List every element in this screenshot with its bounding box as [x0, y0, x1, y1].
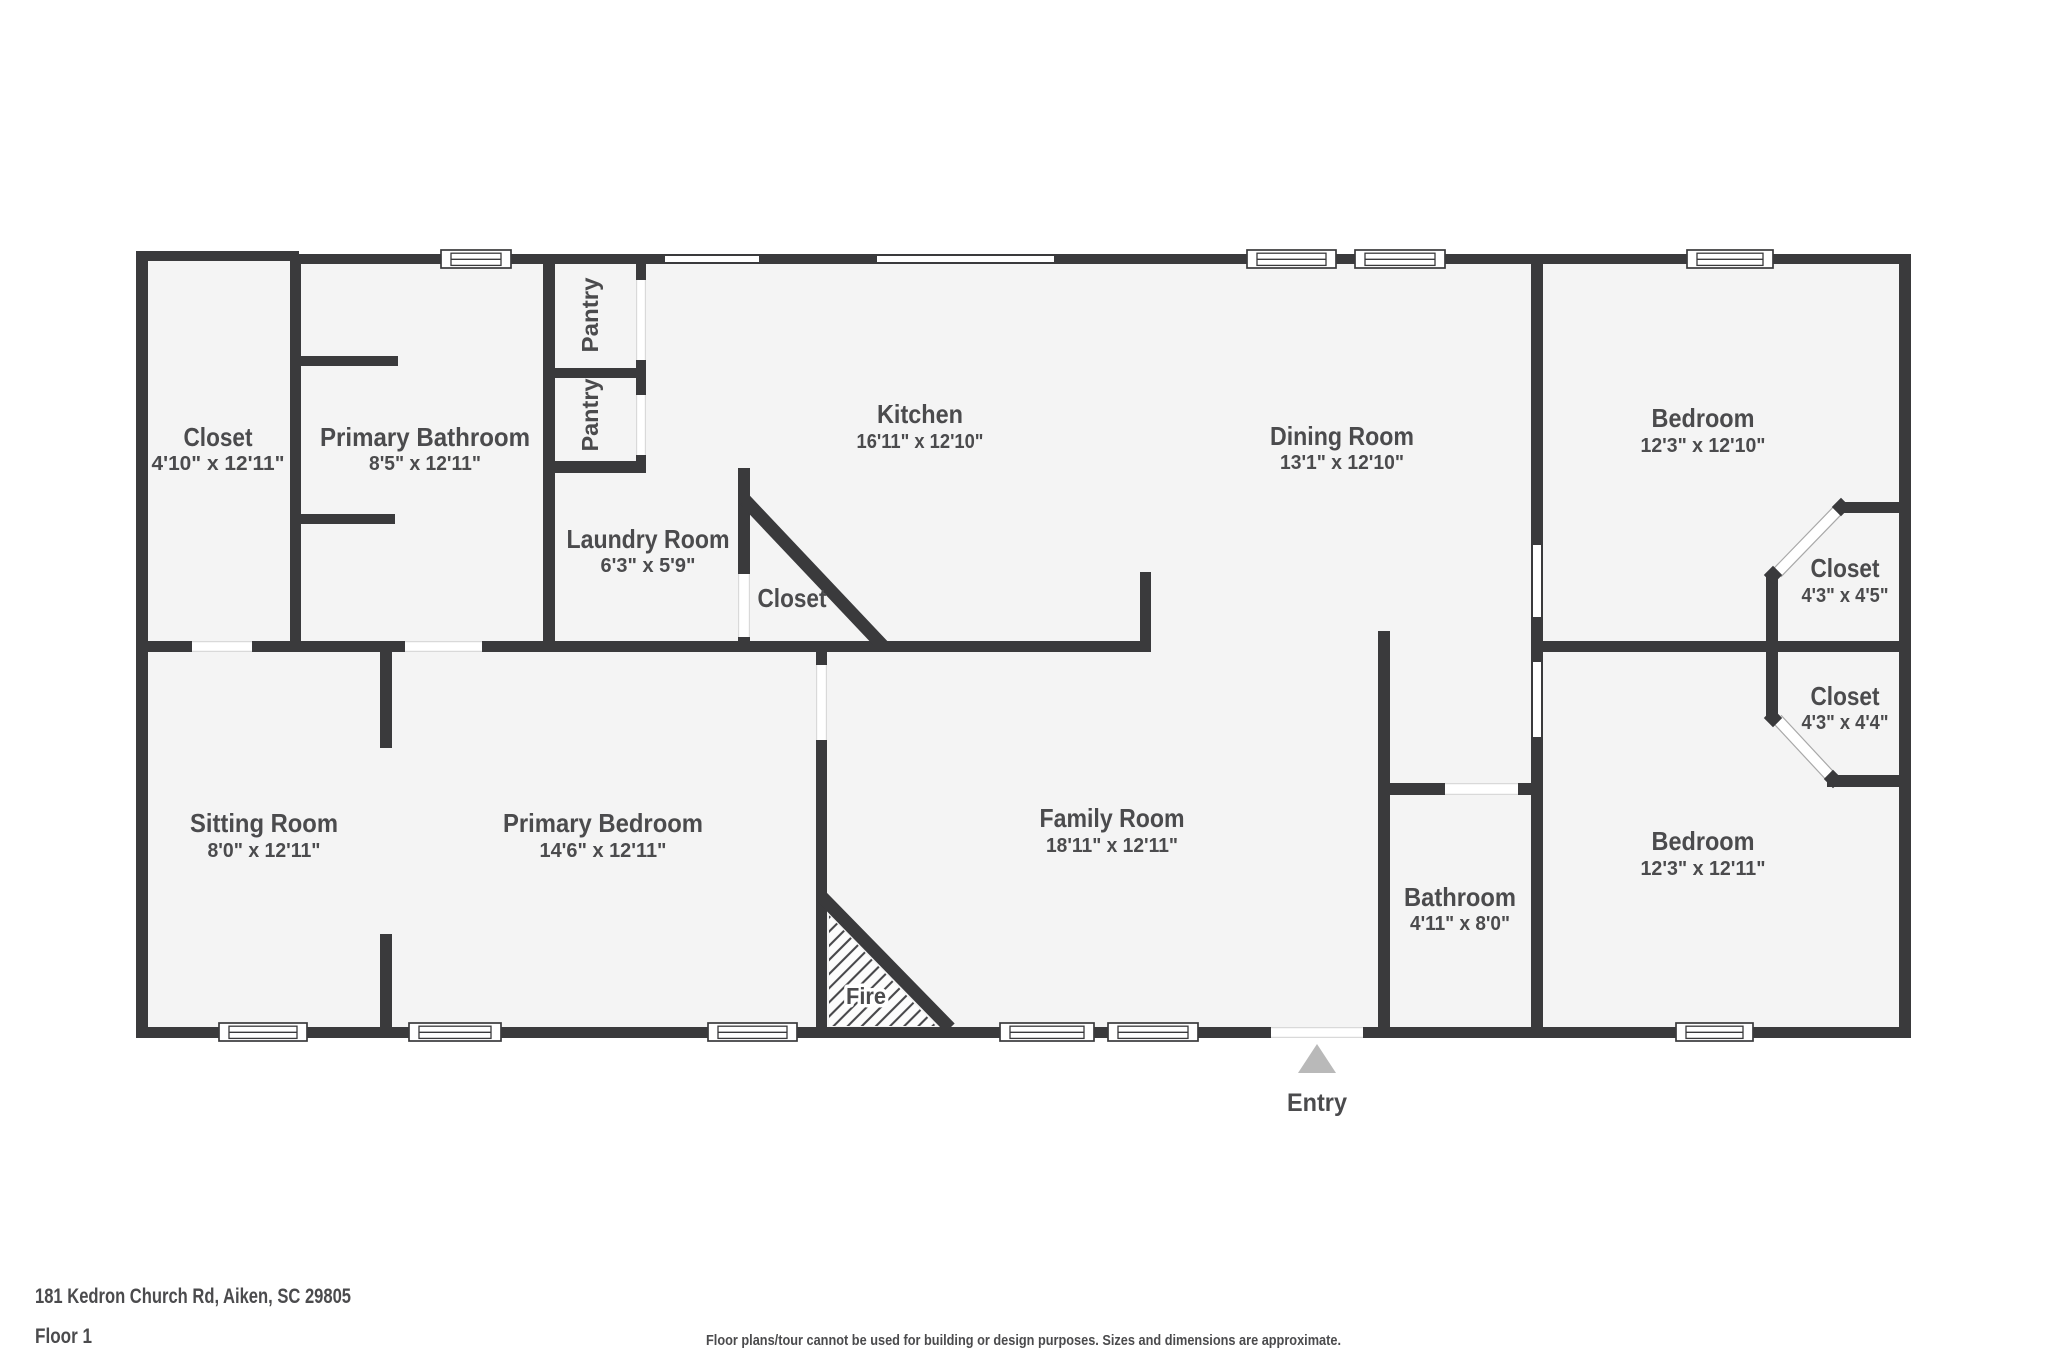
svg-text:4'3" x 4'4": 4'3" x 4'4" — [1802, 712, 1889, 734]
svg-text:Closet: Closet — [1811, 681, 1880, 711]
svg-text:8'0" x 12'11": 8'0" x 12'11" — [208, 840, 321, 862]
svg-text:Floor 1: Floor 1 — [35, 1325, 92, 1348]
svg-text:181 Kedron Church Rd, Aiken, S: 181 Kedron Church Rd, Aiken, SC 29805 — [35, 1285, 351, 1308]
svg-text:Closet: Closet — [1811, 553, 1880, 583]
svg-text:4'3" x 4'5": 4'3" x 4'5" — [1802, 585, 1889, 607]
svg-text:Entry: Entry — [1287, 1089, 1347, 1117]
svg-text:Sitting Room: Sitting Room — [190, 808, 338, 838]
svg-text:Floor plans/tour cannot be use: Floor plans/tour cannot be used for buil… — [706, 1332, 1341, 1349]
svg-text:Fire: Fire — [846, 983, 886, 1009]
svg-text:Pantry: Pantry — [577, 378, 603, 451]
svg-text:12'3" x 12'11": 12'3" x 12'11" — [1641, 858, 1766, 880]
svg-text:Kitchen: Kitchen — [877, 399, 963, 429]
svg-text:Closet: Closet — [184, 422, 253, 452]
svg-text:Pantry: Pantry — [577, 277, 603, 352]
svg-text:Primary Bedroom: Primary Bedroom — [503, 808, 703, 838]
svg-text:Laundry Room: Laundry Room — [567, 524, 730, 554]
svg-text:14'6" x 12'11": 14'6" x 12'11" — [540, 840, 667, 862]
svg-text:Primary Bathroom: Primary Bathroom — [320, 422, 530, 452]
svg-text:8'5" x 12'11": 8'5" x 12'11" — [369, 453, 481, 475]
svg-text:12'3" x 12'10": 12'3" x 12'10" — [1641, 435, 1766, 457]
svg-text:13'1" x 12'10": 13'1" x 12'10" — [1280, 452, 1404, 474]
svg-text:Dining Room: Dining Room — [1270, 421, 1414, 451]
svg-text:4'10" x 12'11": 4'10" x 12'11" — [152, 453, 285, 475]
svg-text:Bedroom: Bedroom — [1652, 826, 1755, 856]
svg-text:4'11" x 8'0": 4'11" x 8'0" — [1410, 913, 1510, 935]
svg-text:Bathroom: Bathroom — [1404, 882, 1516, 912]
svg-text:Family Room: Family Room — [1040, 803, 1185, 833]
svg-text:Bedroom: Bedroom — [1652, 403, 1755, 433]
svg-text:6'3" x 5'9": 6'3" x 5'9" — [601, 555, 696, 577]
svg-text:16'11" x 12'10": 16'11" x 12'10" — [857, 431, 984, 453]
svg-text:18'11" x 12'11": 18'11" x 12'11" — [1046, 835, 1178, 857]
svg-text:Closet: Closet — [758, 583, 827, 613]
